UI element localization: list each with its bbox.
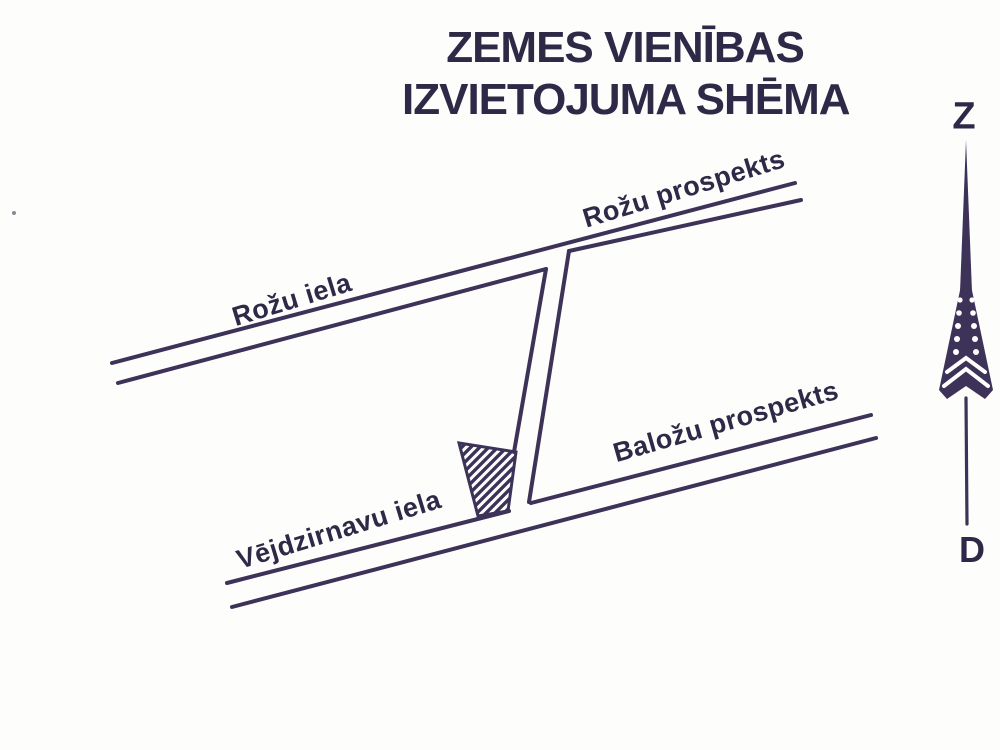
fletching-dot: [957, 297, 962, 302]
fletching-dot: [969, 297, 974, 302]
fletching-dot: [956, 310, 962, 316]
fletching-dot: [971, 323, 977, 329]
scan-speck: [12, 211, 16, 215]
fletching-dot: [953, 349, 959, 355]
fletching-dot: [970, 310, 976, 316]
compass-south-label: D: [959, 529, 985, 571]
fletching-dot: [955, 323, 961, 329]
fletching-dot: [972, 336, 978, 342]
land-unit-scheme-page: ZEMES VIENĪBAS IZVIETOJUMA SHĒMA: [0, 0, 1000, 750]
land-unit-parcel: [459, 443, 516, 516]
north-arrow-tail: [966, 398, 967, 524]
location-scheme-map: [0, 0, 1000, 750]
road-rozu-top-line: [112, 183, 795, 363]
north-arrow: [939, 140, 993, 524]
fletching-dot: [973, 349, 979, 355]
cross-street-right-line: [529, 251, 569, 502]
north-arrow-fletching: [939, 262, 993, 399]
compass-north-label: Z: [952, 96, 975, 139]
fletching-dot: [954, 336, 960, 342]
